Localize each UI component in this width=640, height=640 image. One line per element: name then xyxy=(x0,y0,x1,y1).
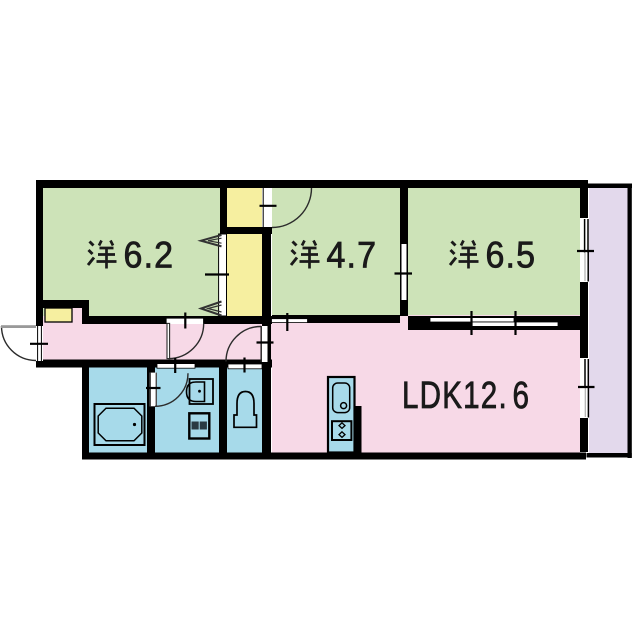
svg-text:6.2: 6.2 xyxy=(124,234,175,276)
svg-text:4.7: 4.7 xyxy=(327,234,378,276)
svg-text:6.5: 6.5 xyxy=(485,234,536,276)
